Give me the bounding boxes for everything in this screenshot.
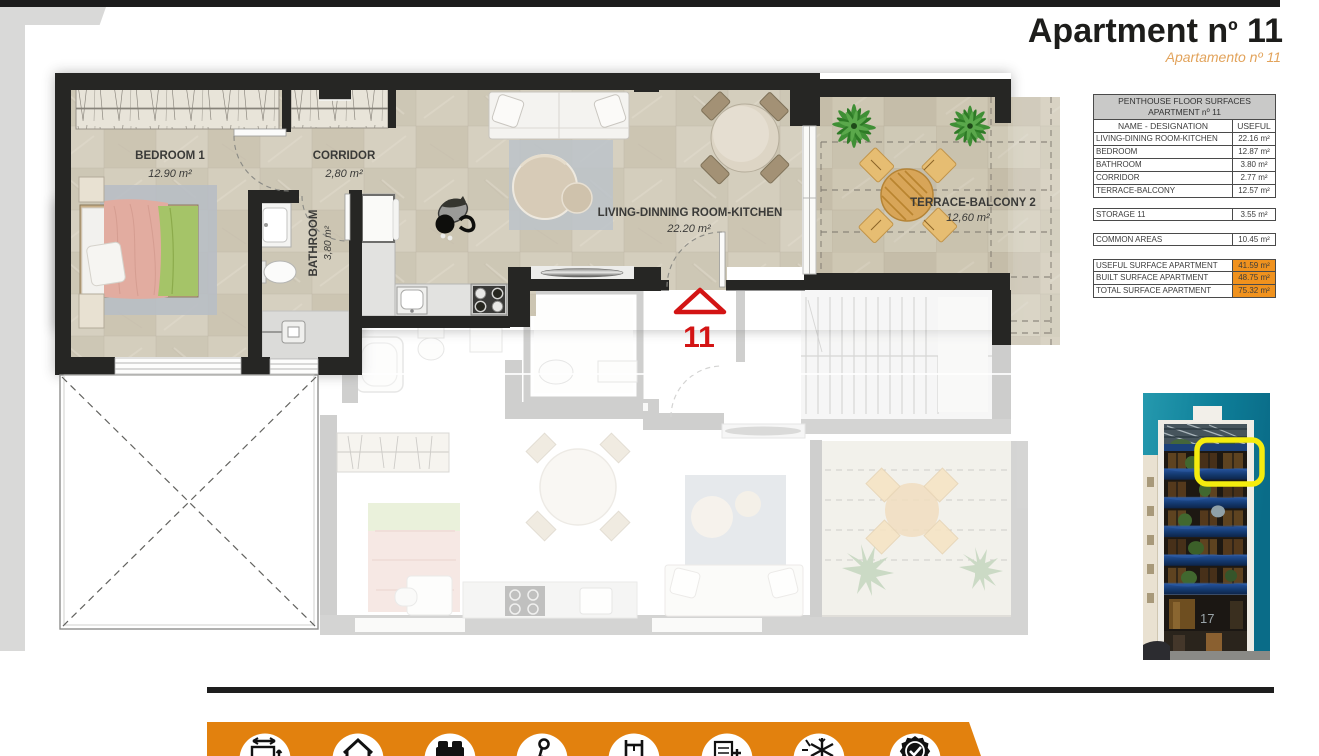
- svg-text:BATHROOM: BATHROOM: [308, 210, 320, 277]
- svg-text:11: 11: [683, 321, 715, 354]
- svg-text:2,80 m²: 2,80 m²: [324, 168, 363, 180]
- svg-text:TERRACE-BALCONY 2: TERRACE-BALCONY 2: [910, 197, 1036, 209]
- svg-text:12,60 m²: 12,60 m²: [946, 212, 990, 224]
- svg-text:12.90 m²: 12.90 m²: [148, 168, 192, 180]
- svg-text:LIVING-DINNING ROOM-KITCHEN: LIVING-DINNING ROOM-KITCHEN: [598, 207, 783, 219]
- svg-text:3,80 m²: 3,80 m²: [323, 225, 334, 260]
- svg-text:22.20 m²: 22.20 m²: [666, 223, 711, 235]
- svg-text:BEDROOM 1: BEDROOM 1: [135, 150, 205, 162]
- svg-text:CORRIDOR: CORRIDOR: [313, 150, 376, 162]
- svg-text:17: 17: [1200, 611, 1214, 626]
